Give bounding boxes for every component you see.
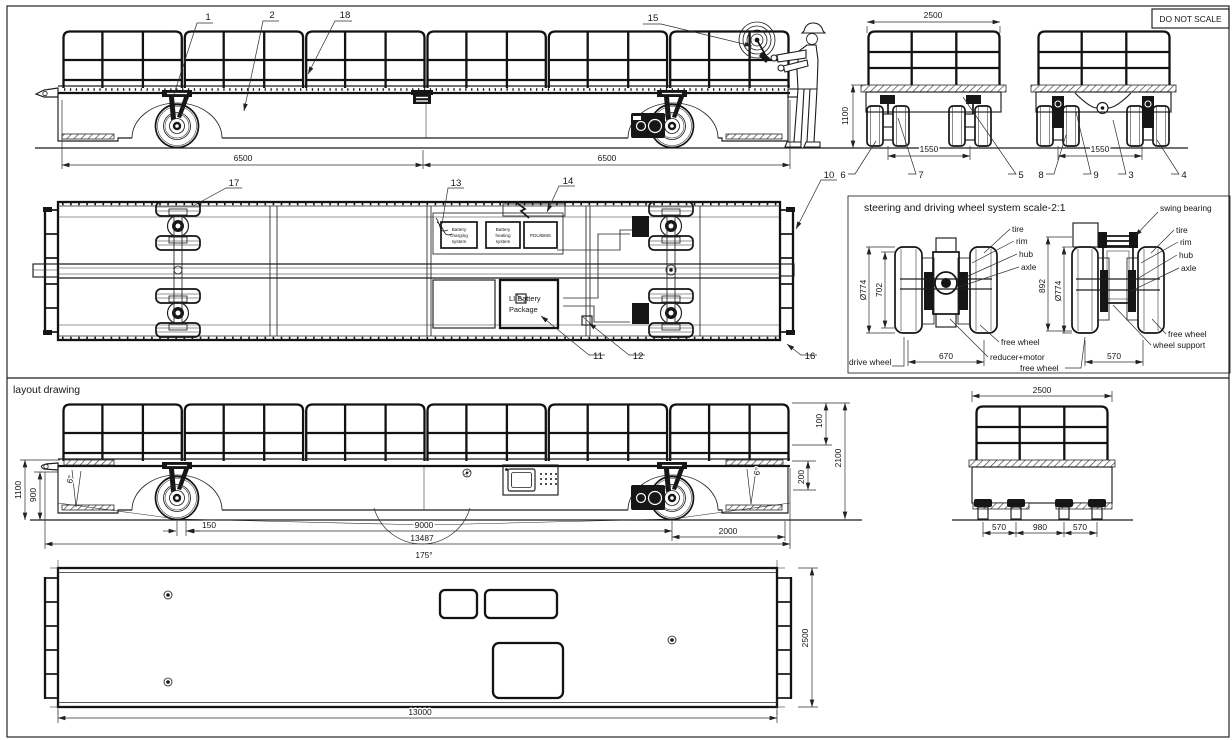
dim-900: 900 [28,488,38,502]
reducer-motor-label: reducer+motor [990,352,1045,362]
hatch-opening-small [440,590,477,618]
heating-line1: Battery [496,227,511,232]
callout-16: 16 [805,351,816,362]
dim-6500-right: 6500 [598,153,617,163]
front-bumper-bottom [45,577,58,699]
dim-150: 150 [202,520,216,530]
dim-6500-left: 6500 [234,153,253,163]
li-battery-box [500,280,558,328]
plan-wheel-front-top [156,202,200,250]
top-side-view: 6500 6500 1 2 18 15 [35,10,1188,169]
dim-570-right: 570 [1073,522,1087,532]
control-panel [503,465,558,495]
plan-view: Battery charging system Battery heating … [33,170,837,362]
dim-670: 670 [939,351,953,361]
dim-702: 702 [874,283,884,297]
front-wheel [156,90,199,148]
hub-label-right: hub [1179,250,1193,260]
charging-line3: system [452,239,467,244]
plan-motor-top [632,216,649,237]
dim-200: 200 [796,470,806,484]
steering-detail-title: steering and driving wheel system scale-… [864,203,1066,214]
callout-7: 7 [918,170,923,181]
callout-8: 8 [1038,170,1043,181]
layout-end-view: 2500 570 980 570 [952,385,1133,537]
callout-14: 14 [563,176,574,187]
mid-coupling [411,90,433,104]
hatch-opening-wide [485,590,557,618]
angle-6-rear: 6° [751,466,763,476]
dim-892: 892 [1037,279,1047,293]
layout-front-wheel [156,462,199,520]
dim-1550-left: 1550 [920,144,939,154]
hard-hat [802,23,825,33]
rear-bumper-bottom [777,577,791,699]
rim-label-right: rim [1180,237,1192,247]
worker-figure [771,23,825,147]
free-wheel-top-label: free wheel [1001,337,1040,347]
plan-wheel-front-bottom [156,289,200,337]
dim-9000: 9000 [415,520,434,530]
callout-2: 2 [269,10,274,21]
callout-17: 17 [229,178,240,189]
top-end-views: 2500 1100 1550 1550 6 7 5 8 9 3 4 [840,10,1187,181]
engineering-drawing: DO NOT SCALE [0,0,1232,740]
callout-4: 4 [1181,170,1187,181]
dim-570: 570 [1107,351,1121,361]
axle-label-left: axle [1021,262,1037,272]
callout-1: 1 [205,12,210,23]
dim-2000: 2000 [719,526,738,536]
dim-570-left: 570 [992,522,1006,532]
callout-5: 5 [1018,170,1023,181]
drive-module: Ø774 702 670 tire rim hub axle free whee… [849,224,1085,373]
dim-980: 980 [1033,522,1047,532]
cad-sheet: DO NOT SCALE [0,0,1232,740]
dim-100: 100 [814,414,824,428]
hub-label-left: hub [1019,249,1033,259]
charging-line1: Battery [452,227,467,232]
dim-13000: 13000 [408,707,432,717]
front-bumper [43,207,58,335]
battery-line1: LI Battery [509,294,541,303]
callout-6: 6 [840,170,845,181]
bottom-plan-view: 13000 2500 [45,560,818,723]
tire-label-right: tire [1176,225,1188,235]
heating-line3: system [496,239,511,244]
charging-line2: charging [450,233,468,238]
wheel-arch-front [132,103,222,138]
plan-wheel-rear-top [649,202,693,250]
dim-2500-bottom: 2500 [800,628,810,647]
steering-detail: steering and driving wheel system scale-… [848,196,1230,373]
callout-3: 3 [1128,170,1133,181]
hatch-opening-large [493,643,563,698]
layout-drive-motor [631,485,665,510]
callout-12: 12 [633,351,644,362]
dim-2500-end: 2500 [1033,385,1052,395]
dim-2500-top: 2500 [924,10,943,20]
angle-175: 175° [415,550,432,560]
rear-bumper [780,207,795,335]
dim-dia774-right: Ø774 [1053,280,1063,301]
callout-18: 18 [340,10,351,21]
callout-10: 10 [824,170,835,181]
dim-13487: 13487 [410,533,434,543]
callout-13: 13 [451,178,462,189]
heating-line2: heating [495,233,511,238]
tire-label-left: tire [1012,224,1024,234]
do-not-scale-label: DO NOT SCALE [1159,14,1222,24]
dim-dia774-left: Ø774 [858,279,868,300]
angle-6-front: 6° [64,474,76,484]
dim-1100: 1100 [840,107,850,125]
layout-side-view: 6° 6° 1100 900 150 9000 13487 175° 2000 … [13,403,862,560]
free-wheel-bottom-label: free wheel [1020,363,1059,373]
do-not-scale-stamp: DO NOT SCALE [1152,9,1229,28]
callout-15: 15 [648,13,659,24]
callout-11: 11 [593,351,603,362]
emblem [463,469,471,477]
rim-label-left: rim [1016,236,1028,246]
battery-bay: Battery charging system Battery heating … [433,203,633,328]
layout-drawing-label: layout drawing [13,385,80,396]
callout-9: 9 [1093,170,1098,181]
drive-motor [631,113,665,138]
wheel-support-label: wheel support [1152,340,1206,350]
plan-motor-bottom [632,303,649,324]
drain-points [164,591,676,686]
swing-bearing-label: swing bearing [1160,203,1212,213]
drive-wheel-label: drive wheel [849,357,892,367]
pdu-label: PDU/BMS [530,233,551,238]
dim-2100: 2100 [833,448,843,467]
free-wheel-label-right: free wheel [1168,329,1207,339]
free-wheel-module: 892 Ø774 570 swing bearing tire rim hub … [1037,203,1212,366]
cable-reel [739,22,775,63]
plan-wheel-rear-bottom [649,289,693,337]
axle-label-right: axle [1181,263,1197,273]
dim-1100-layout: 1100 [13,481,23,499]
battery-line2: Package [509,305,538,314]
dim-1550-right: 1550 [1091,144,1110,154]
